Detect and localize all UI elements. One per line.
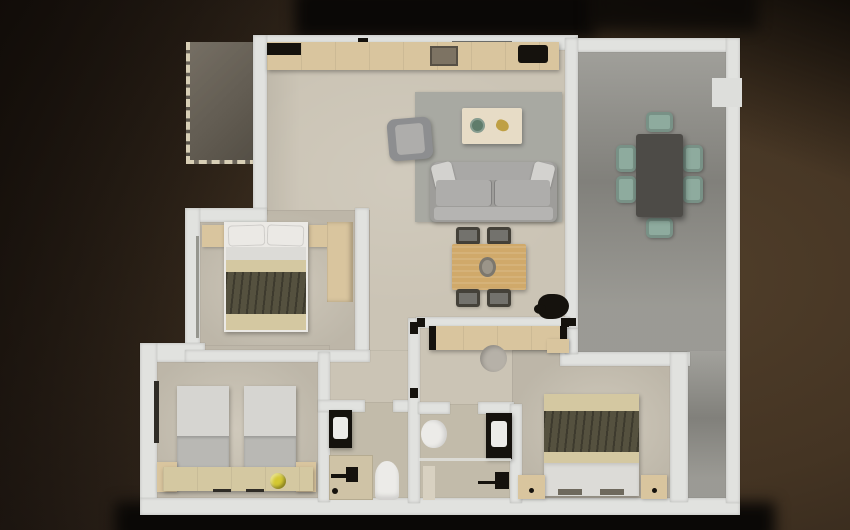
sideboard-end-left [429, 326, 436, 350]
bench-handle-1 [213, 489, 231, 492]
yellow-ball [270, 473, 286, 489]
cooktop [518, 45, 548, 63]
green-plate [470, 118, 485, 133]
bed-main-sheet [226, 247, 306, 260]
terrace-chair-left-2 [616, 176, 636, 203]
bed-second-blanket-mid [544, 452, 639, 463]
bathroom1-toilet [375, 461, 399, 500]
shower-box [346, 467, 358, 482]
dining-chair-top-2 [487, 227, 511, 245]
wall-living-terrace [565, 38, 578, 328]
sofa-seat-right [494, 180, 550, 206]
bathroom2-shower-bar [478, 481, 498, 484]
bed-main-pillow-right [267, 224, 305, 246]
dining-chair-bottom-1 [456, 289, 480, 307]
twin-bed-left [177, 386, 229, 470]
nightstand-main-left [202, 225, 224, 247]
bed-main-pillow-left [228, 224, 266, 246]
sofa-front [434, 207, 553, 220]
terrace-chair-right-2 [683, 176, 703, 203]
bed-second-blanket-top [544, 394, 639, 411]
terrace-floor-south [686, 350, 730, 502]
twin-bench-desk [163, 467, 313, 491]
terrace-chair-bottom [646, 218, 673, 238]
door-frame-mark-2 [410, 388, 418, 398]
coffee-table [462, 108, 522, 144]
wall-bathroom2-top-a [418, 402, 450, 414]
bed-main [224, 222, 308, 332]
wall-left-upper [253, 35, 267, 215]
dining-chair-seat [459, 293, 477, 304]
armchair-seat [395, 123, 426, 155]
wardrobe-main [327, 222, 353, 302]
nightstand-knob [529, 488, 534, 493]
bed-second-foot-mark-2 [600, 489, 624, 495]
kitchen-sink [430, 46, 458, 66]
bedroom-second-console [547, 339, 569, 353]
dining-chair-seat [490, 230, 508, 241]
bed-main-blanket-top [226, 260, 306, 272]
bench-handle-2 [246, 489, 264, 492]
terrace-wall-unit [712, 78, 742, 107]
bed-main-blanket-bottom [226, 314, 306, 330]
radiator-strip [154, 381, 159, 443]
entry-porch-floor [186, 42, 258, 164]
bed-second [544, 394, 639, 496]
shower-drain [332, 488, 338, 494]
sofa [430, 162, 557, 222]
pouf [480, 345, 507, 372]
terrace-chair-right-1 [683, 145, 703, 172]
terrace-divider-foot [566, 318, 576, 326]
shadow-top-right [588, 0, 758, 30]
terrace-chair-left-1 [616, 145, 636, 172]
table-centerpiece [479, 257, 496, 277]
bed-second-throw [544, 411, 639, 452]
bed-second-foot-mark-1 [558, 489, 582, 495]
nightstand-second-left [518, 475, 545, 499]
armchair [386, 116, 433, 162]
sofa-seat-left [436, 180, 492, 206]
twin-bed-fold [177, 436, 229, 470]
wall-bottom [140, 498, 740, 515]
terrace-chair-top [646, 112, 673, 132]
bed-main-throw [226, 272, 306, 314]
wall-bedroom-main-bottom [185, 350, 370, 362]
bathroom2-vanity [486, 413, 512, 459]
wall-top-terrace [575, 38, 740, 52]
bathroom2-ledge [419, 458, 511, 461]
nightstand-second-right [641, 475, 667, 499]
gold-decor [495, 118, 511, 133]
dining-table [452, 244, 526, 290]
bathroom2-sink [491, 421, 507, 447]
bathroom1-sink [333, 417, 348, 439]
bathroom2-toilet [421, 420, 447, 448]
wall-terrace-right [726, 38, 740, 503]
dining-chair-top-1 [456, 227, 480, 245]
twin-bed-right [244, 386, 296, 470]
shadow-top [295, 0, 595, 38]
terrace-table [636, 134, 683, 217]
houseplant-leaf [534, 304, 546, 314]
wall-bedroom-main-right [355, 208, 369, 354]
bathroom1-shower [329, 455, 373, 500]
bathroom2-mat [423, 466, 435, 500]
dining-chair-bottom-2 [487, 289, 511, 307]
kitchen-upper-cabinet [267, 43, 301, 55]
dining-chair-seat [459, 230, 477, 241]
kitchen-counter [267, 42, 559, 70]
wall-bedroom-second-right [670, 352, 688, 502]
bedroom-main-window [196, 236, 199, 338]
twin-bed-fold [244, 436, 296, 470]
floor-plan-render [0, 0, 850, 530]
door-frame-mark-3 [417, 318, 425, 327]
bathroom1-vanity [329, 410, 352, 448]
dining-chair-seat [490, 293, 508, 304]
nightstand-knob [652, 488, 657, 493]
